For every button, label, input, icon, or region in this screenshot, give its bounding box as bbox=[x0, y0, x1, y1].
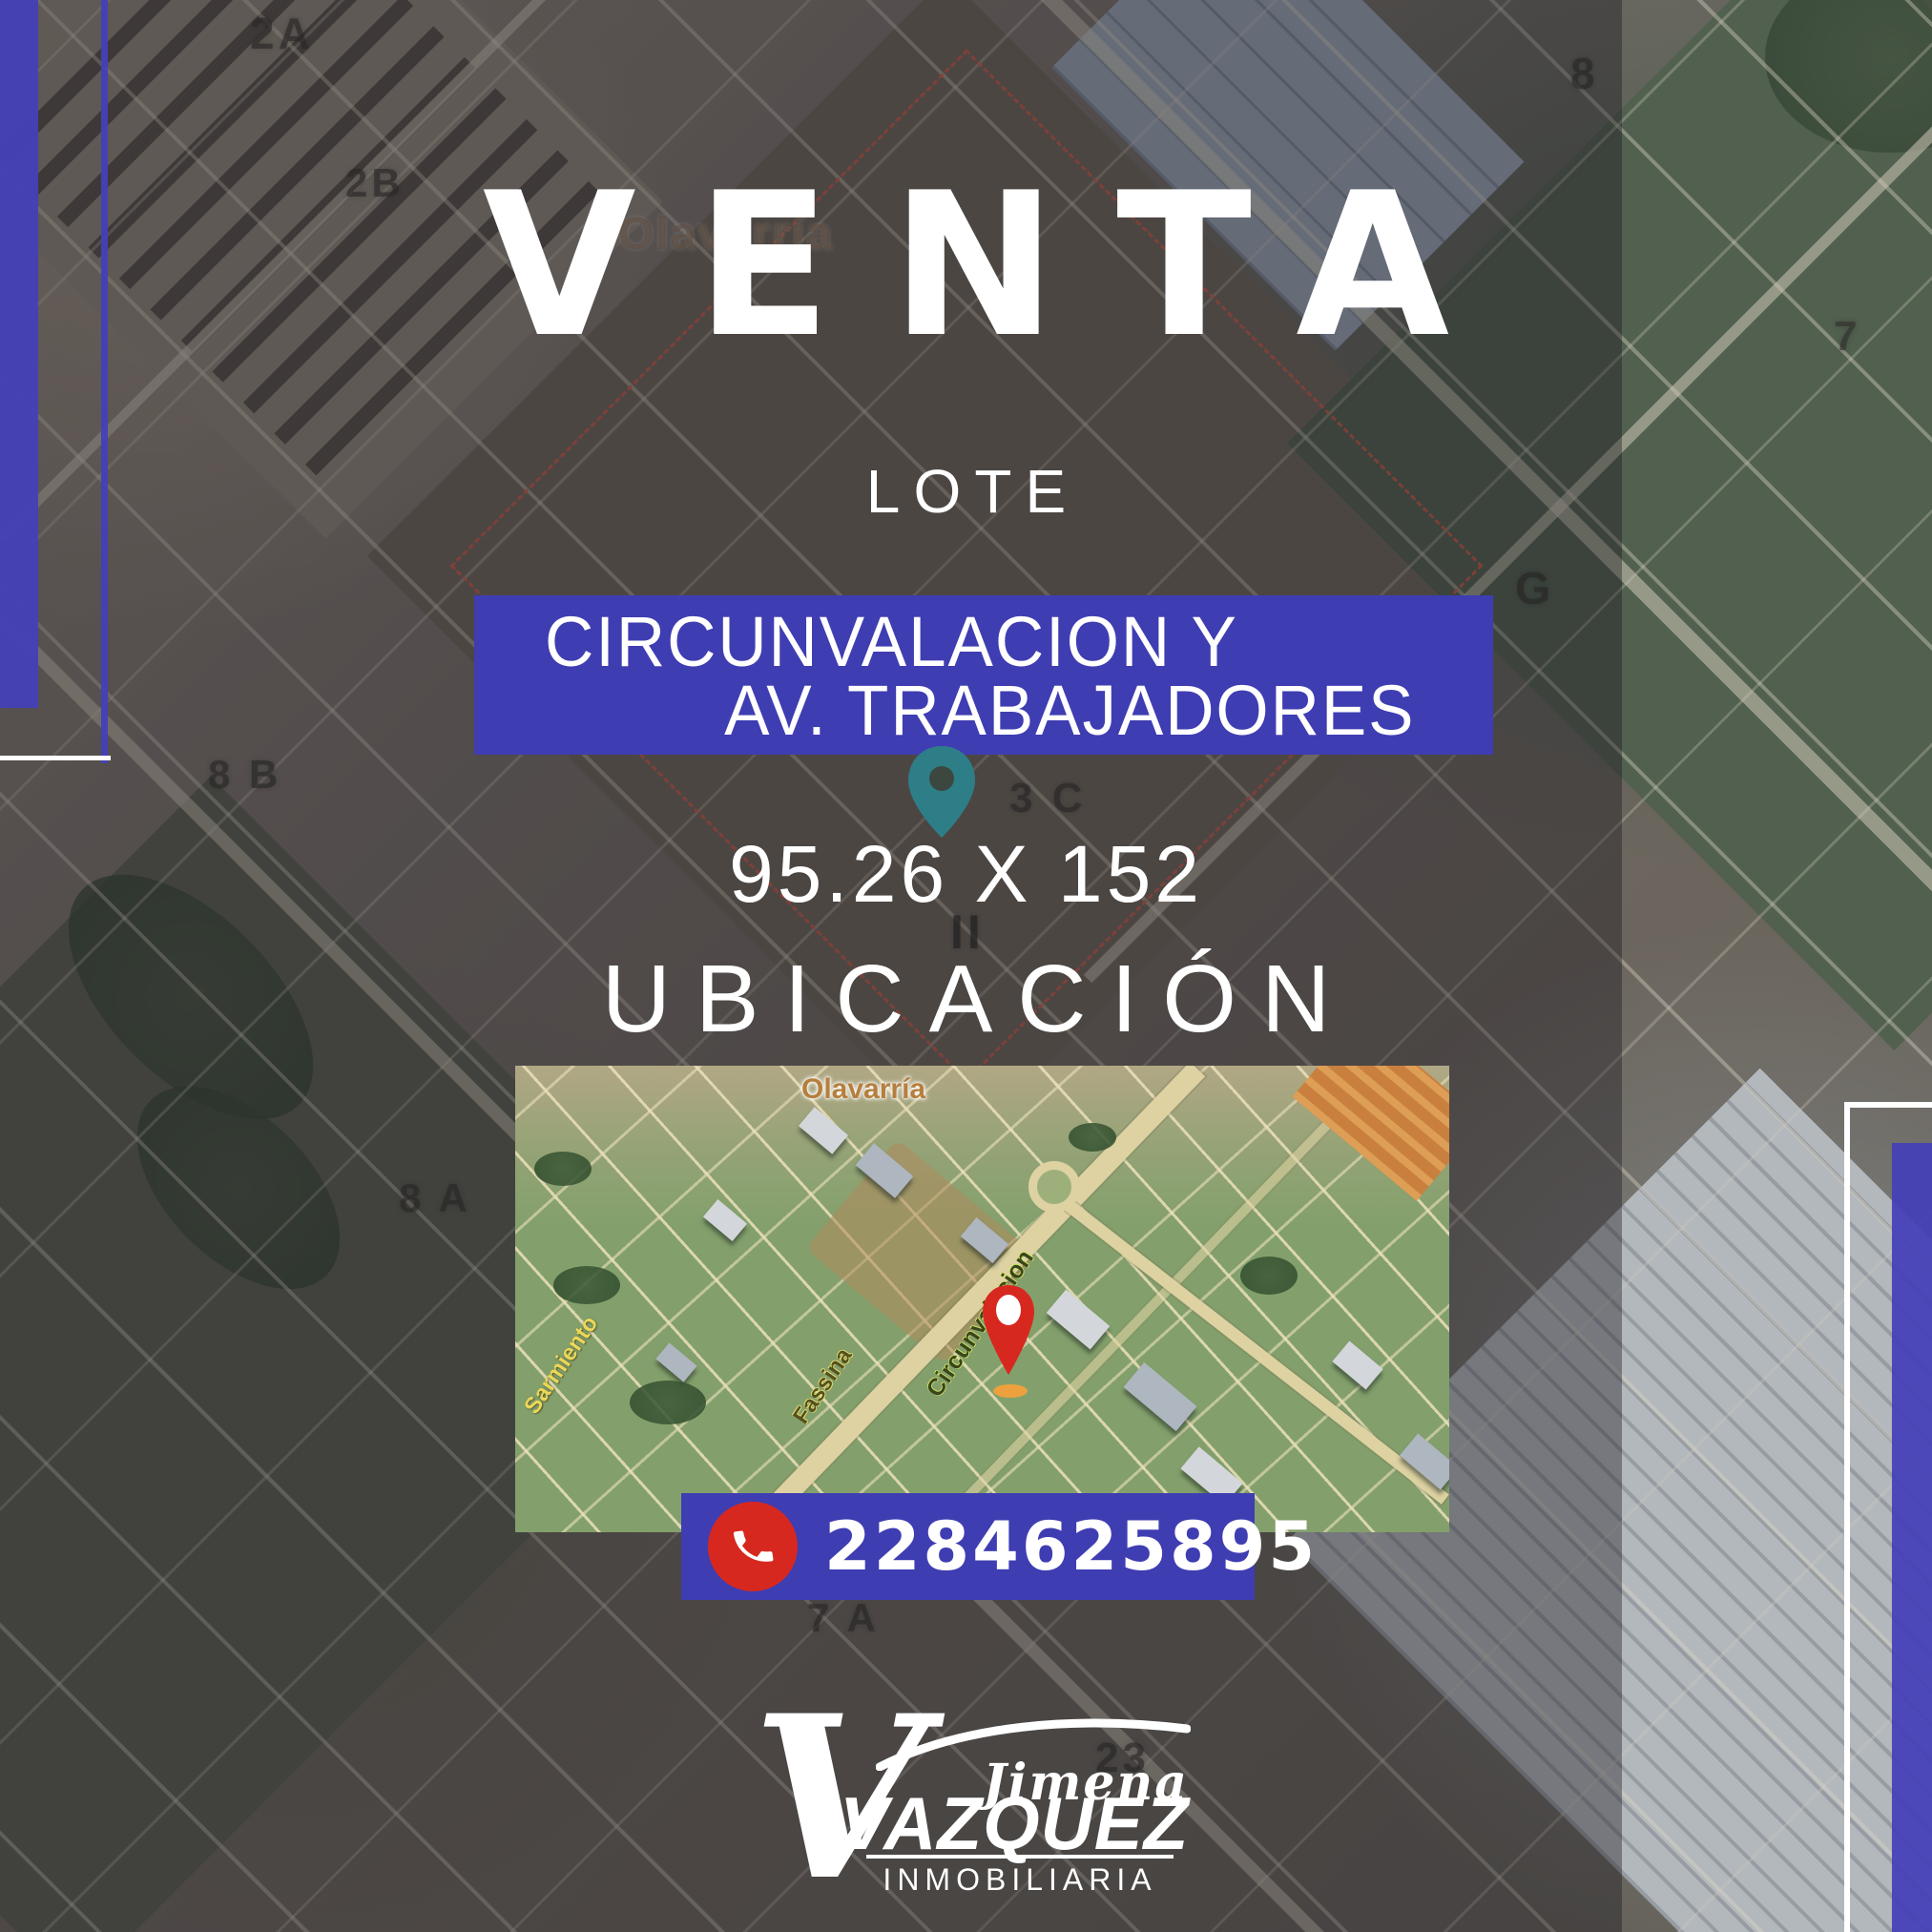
map-pin-icon bbox=[981, 1283, 1036, 1379]
sale-title: VENTA bbox=[30, 151, 1932, 382]
inset-map-trees bbox=[1240, 1257, 1298, 1295]
left-white-line bbox=[0, 756, 111, 760]
inset-map-trees bbox=[534, 1152, 592, 1186]
location-heading: UBICACIÓN bbox=[12, 945, 1932, 1054]
phone-icon-badge bbox=[708, 1502, 798, 1591]
logo-divider-line bbox=[866, 1855, 1174, 1859]
inset-map-trees bbox=[553, 1266, 620, 1304]
phone-icon bbox=[727, 1521, 779, 1572]
red-pin-shadow bbox=[993, 1384, 1028, 1398]
inset-map-trees bbox=[1069, 1123, 1116, 1152]
map-pin-icon bbox=[906, 744, 977, 840]
left-accent-line bbox=[101, 0, 108, 763]
phone-banner: 2284625895 bbox=[681, 1493, 1255, 1600]
inset-map-trees bbox=[630, 1381, 706, 1424]
lot-size-text: 95.26 X 152 bbox=[0, 828, 1932, 921]
brand-last-name: VAZQUEZ bbox=[840, 1786, 1189, 1860]
right-accent-bar bbox=[1892, 1143, 1932, 1932]
inset-map-roundabout bbox=[1028, 1161, 1080, 1213]
lot-label: LOTE bbox=[7, 456, 1932, 527]
address-line-1: CIRCUNVALACION Y bbox=[545, 607, 1238, 677]
phone-number: 2284625895 bbox=[824, 1507, 1318, 1586]
inset-location-map: Olavarría Fassina Circunvalacion Sarmien… bbox=[515, 1066, 1449, 1532]
address-banner: CIRCUNVALACION Y AV. TRABAJADORES bbox=[474, 595, 1493, 755]
flyer-canvas: 2A 2B 8 7 G 3 C II 8 B 8 A 7 A 23 Olavar… bbox=[0, 0, 1932, 1932]
address-line-2: AV. TRABAJADORES bbox=[724, 675, 1415, 746]
brand-tagline: INMOBILIARIA bbox=[861, 1862, 1179, 1898]
inset-map-city-label: Olavarría bbox=[801, 1073, 925, 1106]
